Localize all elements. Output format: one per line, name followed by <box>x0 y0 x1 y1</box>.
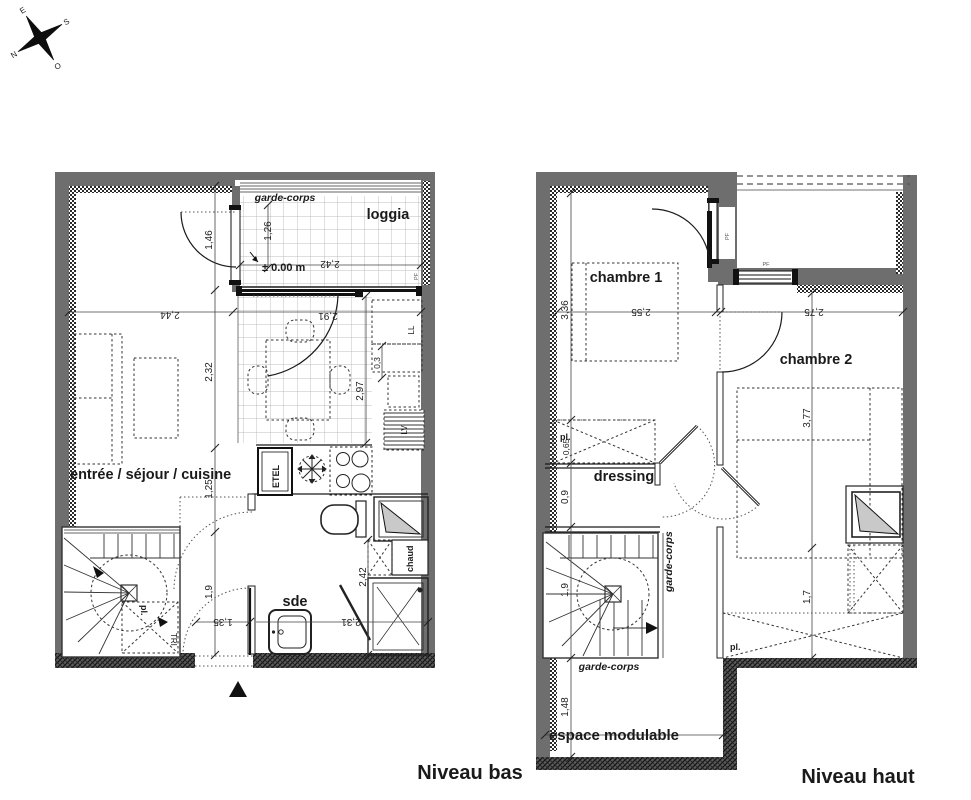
closet-bottom-label: pl. <box>730 642 741 652</box>
niveau-haut-title: Niveau haut <box>801 766 915 788</box>
toilet <box>321 501 366 537</box>
entrance-arrow <box>229 681 247 697</box>
etel-label: ETEL <box>271 464 281 488</box>
floor-plan-page: E S O N <box>0 0 971 800</box>
dim-h-ch1: 3,36 <box>560 300 571 320</box>
hob-burners <box>330 447 372 495</box>
compass-rose: E S O N <box>0 0 89 88</box>
kitchen-sink <box>374 497 428 541</box>
tri-label: TRI <box>169 633 178 646</box>
plan-niveau-bas: LL LV ETEL <box>55 172 523 784</box>
dim-h-kitchen: 2,97 <box>355 381 366 401</box>
washbasin <box>269 610 311 654</box>
dim-appliance: 0,3 <box>372 357 382 369</box>
window-tag-haut-2: PF <box>762 262 770 268</box>
closet-bottom: pl. <box>723 613 903 658</box>
garde-corps-label-bas: garde-corps <box>254 192 316 204</box>
side-table <box>134 358 178 438</box>
sde-label: sde <box>283 594 308 610</box>
chambre2-door <box>722 312 782 372</box>
appliance-column: LL LV <box>372 300 424 450</box>
dim-w-kitchen: 2,91 <box>318 310 338 321</box>
compass-west-label: O <box>53 61 63 72</box>
dim-h-hall: 1,9 <box>204 585 215 599</box>
dim-h-dressing: 0,9 <box>560 490 571 504</box>
dim-h-entry: 1,46 <box>204 230 215 250</box>
chambre2-label: chambre 2 <box>780 352 853 368</box>
dim-h-ch2: 3,77 <box>802 408 813 428</box>
dim-w-ch2: 2,75 <box>804 306 824 317</box>
dim-h-sde: 2,42 <box>358 567 369 587</box>
staircase-bas: pl. TRI <box>62 527 180 657</box>
kitchen-tiles <box>238 296 372 443</box>
dim-w-sejour: 2,44 <box>160 309 180 320</box>
dim-w-hall: 1,35 <box>213 616 233 627</box>
dim-h-loggia: 1,26 <box>263 221 274 241</box>
dim-h-pl: 0,65 <box>561 438 571 455</box>
dim-h-espace: 1,48 <box>560 697 571 717</box>
plan-niveau-haut: PF PF <box>536 172 917 788</box>
washer-label: LL <box>407 325 416 334</box>
chambre1-door <box>652 209 712 268</box>
dressing-label: dressing <box>594 469 654 485</box>
garde-corps-bottom-label: garde-corps <box>578 661 640 673</box>
dim-h-pl2: 1,7 <box>802 590 813 604</box>
chambre1-label: chambre 1 <box>590 270 663 286</box>
kitchen-counter: ETEL <box>256 445 372 495</box>
level-mark-label: ± 0.00 m <box>262 262 306 274</box>
compass-north-label: N <box>9 49 19 60</box>
closet-label: pl. <box>139 605 149 616</box>
staircase-haut: garde-corps garde-corps <box>543 531 675 673</box>
loggia-divider-wall <box>229 186 241 292</box>
garde-corps-side-label: garde-corps <box>663 531 675 593</box>
dim-w-loggia: 2,42 <box>320 258 340 269</box>
window-tag-bas: PF <box>414 272 420 280</box>
dim-w-sde: 2,31 <box>341 616 361 627</box>
compass-south-label: S <box>62 17 71 27</box>
sejour-label: entrée / séjour / cuisine <box>70 467 231 483</box>
niveau-bas-title: Niveau bas <box>417 762 523 784</box>
loggia-bay-window <box>236 286 422 297</box>
dim-h-sejour: 2,32 <box>204 362 215 382</box>
espace-label: espace modulable <box>549 727 679 744</box>
vanity-chambre2 <box>846 486 903 543</box>
loggia-label: loggia <box>367 207 411 223</box>
dim-h-stair: 1,9 <box>560 583 571 597</box>
window-tag-haut-1: PF <box>725 232 731 240</box>
loggia-railing <box>240 183 421 192</box>
fridge-symbol <box>298 455 326 483</box>
chambre2-window: PF <box>733 262 798 285</box>
dishwasher-label: LV <box>400 425 409 435</box>
dim-w-ch1: 2,55 <box>631 306 651 317</box>
floor-plan-drawing: E S O N <box>0 0 971 800</box>
sofa <box>74 334 122 464</box>
closet-chambre2 <box>848 545 903 613</box>
compass-east-label: E <box>18 5 27 15</box>
chaud-label: chaud <box>405 545 415 572</box>
water-heater: chaud <box>368 540 428 575</box>
